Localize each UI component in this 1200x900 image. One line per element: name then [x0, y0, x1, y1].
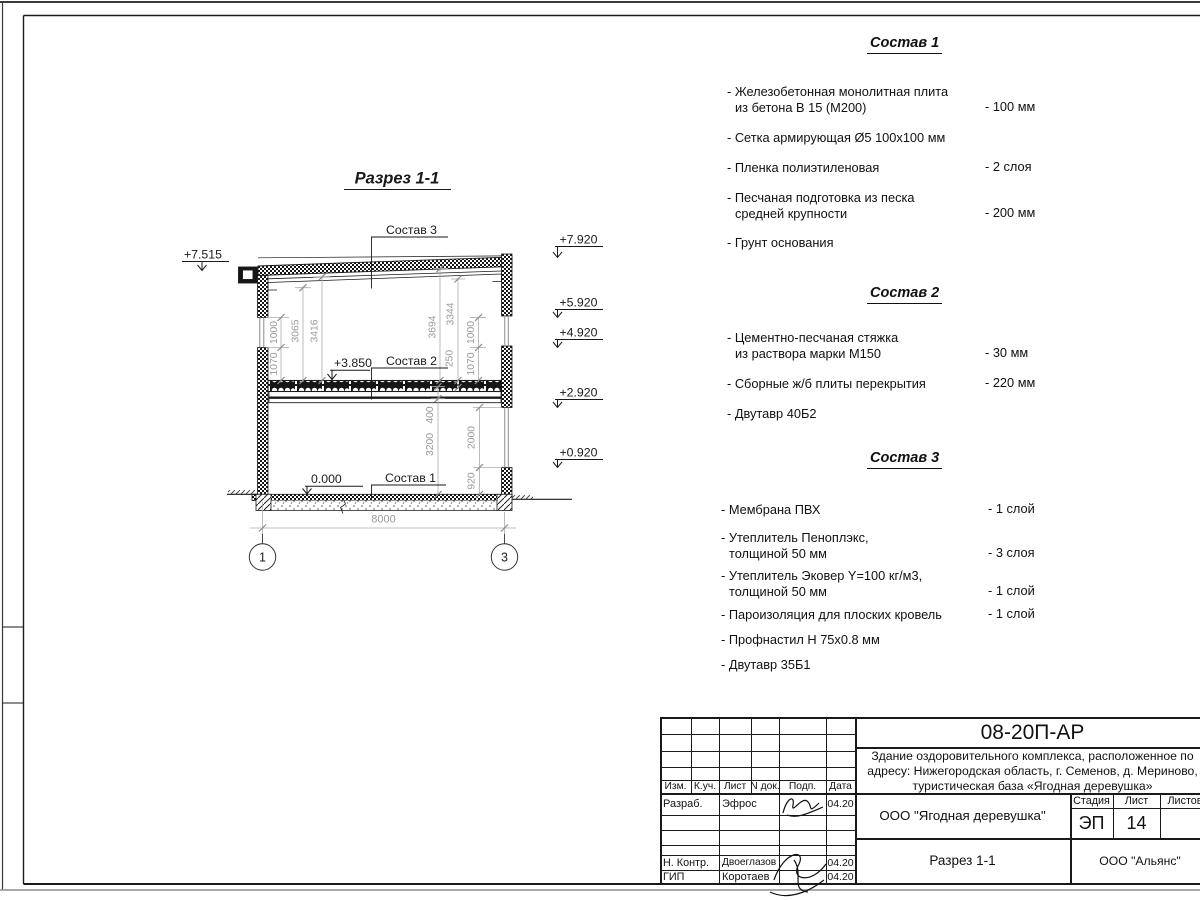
role-gip: ГИП: [663, 870, 719, 883]
list-item: - Двутавр 35Б1: [721, 657, 1061, 673]
svg-text:3344: 3344: [446, 302, 457, 325]
svg-text:+5.920: +5.920: [560, 296, 598, 310]
sostav-1-heading: Состав 1: [867, 35, 942, 54]
role-nkontr: Н. Контр.: [663, 855, 719, 870]
document-code: 08-20П-АР: [855, 719, 1200, 746]
sostav-2-heading: Состав 2: [867, 285, 942, 304]
svg-text:1070: 1070: [466, 352, 477, 375]
svg-text:3416: 3416: [310, 319, 321, 342]
drawing-sheet: { "drawing": { "title": "Разрез 1-1", "a…: [0, 0, 1200, 900]
svg-text:1070: 1070: [269, 352, 280, 375]
svg-text:+0.920: +0.920: [560, 446, 598, 460]
list-item: - Сборные ж/б плиты перекрытия- 220 мм: [727, 376, 1067, 392]
list-item: - Пленка полиэтиленовая- 2 слоя: [727, 160, 1067, 176]
svg-text:1000: 1000: [466, 321, 477, 344]
axis-3: 3: [501, 551, 508, 565]
list-item: - Железобетонная монолитная плитаиз бето…: [727, 84, 1067, 115]
project-description: Здание оздоровительного комплекса, распо…: [860, 749, 1200, 793]
svg-text:3694: 3694: [428, 315, 439, 338]
signature-gip: [760, 842, 845, 900]
svg-text:1000: 1000: [269, 321, 280, 344]
stage-value: ЭП: [1070, 808, 1113, 838]
axis-bubbles: 1 3: [249, 534, 517, 570]
view-name: Разрез 1-1: [855, 838, 1070, 883]
list-item: - Двутавр 40Б2: [727, 406, 1067, 422]
list-item: - Цементно-песчаная стяжкаиз раствора ма…: [727, 330, 1067, 361]
dimension-labels: 1000 1070 3065 3416 3694 3344 250 1000 1…: [269, 302, 478, 525]
svg-text:+3.850: +3.850: [334, 356, 372, 370]
axis-1: 1: [259, 551, 266, 565]
list-item: - Утеплитель Эковер Y=100 кг/м3,толщиной…: [721, 568, 1061, 599]
sheets-label: Листов: [1160, 793, 1200, 808]
svg-text:920: 920: [467, 472, 478, 489]
sheet-label: Лист: [1113, 793, 1160, 808]
title-block: Изм. К.уч. Лист N док. Подп. Дата Разраб…: [660, 717, 1200, 885]
list-item: - Мембрана ПВХ- 1 слой: [721, 502, 1061, 518]
svg-text:+7.515: +7.515: [184, 248, 222, 262]
svg-text:250: 250: [445, 350, 456, 367]
svg-text:+4.920: +4.920: [560, 326, 598, 340]
org-name: ООО "Альянс": [1070, 838, 1200, 883]
list-item: - Пароизоляция для плоских кровель- 1 сл…: [721, 607, 1061, 623]
sheet-number: 14: [1113, 808, 1160, 838]
list-item: - Утеплитель Пеноплэкс,толщиной 50 мм - …: [721, 530, 1061, 561]
col-izm: Изм.: [660, 780, 691, 793]
svg-text:8000: 8000: [371, 514, 395, 526]
sostav-3-heading: Состав 3: [867, 450, 942, 469]
signature-razrab: [775, 791, 835, 821]
role-razrab: Разраб.: [663, 793, 719, 815]
list-item: - Грунт основания: [727, 235, 1067, 251]
svg-text:0.000: 0.000: [311, 472, 342, 486]
name-razrab: Эфрос: [722, 793, 779, 815]
list-item: - Песчаная подготовка из пескасредней кр…: [727, 190, 1067, 221]
list-item: - Сетка армирующая Ø5 100х100 мм: [727, 130, 1067, 146]
col-list: Лист: [719, 780, 751, 793]
svg-text:+2.920: +2.920: [560, 386, 598, 400]
svg-text:Состав 1: Состав 1: [385, 471, 436, 485]
view-title: Разрез 1-1: [355, 170, 440, 188]
svg-text:3065: 3065: [291, 319, 302, 342]
list-item: - Профнастил Н 75х0.8 мм: [721, 632, 1061, 648]
svg-text:2000: 2000: [467, 426, 478, 449]
svg-text:400: 400: [425, 406, 436, 423]
svg-text:Состав 3: Состав 3: [386, 223, 437, 237]
col-kuch: К.уч.: [691, 780, 719, 793]
stage-label: Стадия: [1070, 793, 1113, 808]
client-name: ООО "Ягодная деревушка": [855, 793, 1070, 838]
svg-text:Состав 2: Состав 2: [386, 354, 437, 368]
svg-text:+7.920: +7.920: [560, 233, 598, 247]
svg-text:3200: 3200: [425, 433, 436, 456]
